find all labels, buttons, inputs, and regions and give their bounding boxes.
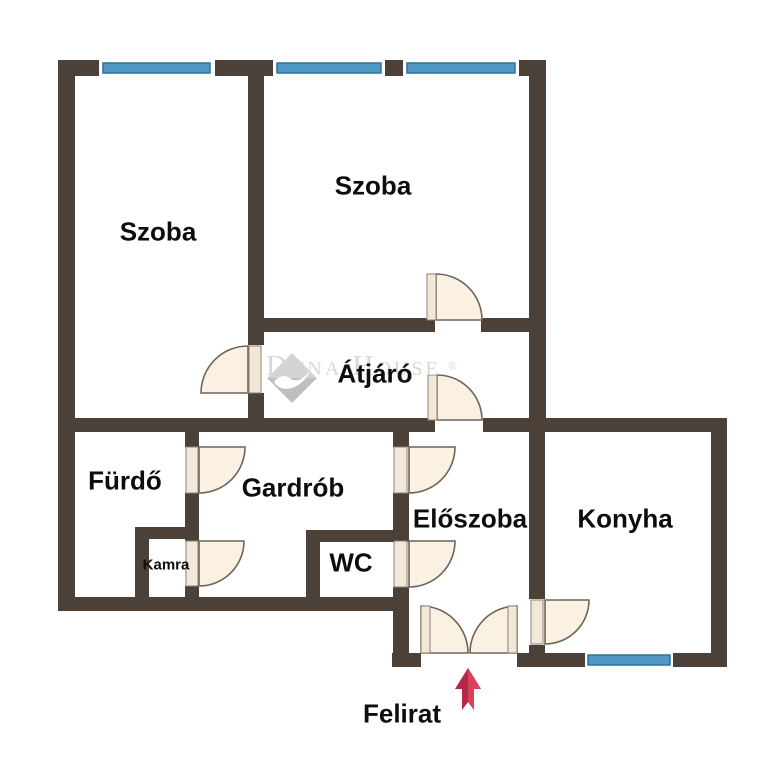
door-leaf bbox=[428, 375, 437, 420]
door-swing-arc bbox=[545, 600, 589, 644]
floorplan: Duna House® Szoba Szoba Átjáró Fürdő Gar… bbox=[0, 0, 768, 768]
entrance-arrow-icon bbox=[455, 668, 481, 710]
wall-segment bbox=[670, 653, 727, 667]
door-szoba-left bbox=[201, 346, 261, 393]
door-szoba-right bbox=[427, 274, 482, 320]
wall-segment bbox=[529, 418, 545, 599]
wall-segment bbox=[711, 418, 727, 667]
door-leaf bbox=[394, 447, 407, 493]
room-label-konyha: Konyha bbox=[577, 504, 672, 535]
wall-segment bbox=[393, 587, 409, 667]
door-swing-arc bbox=[199, 541, 244, 586]
door-entrance-right bbox=[470, 606, 517, 653]
wall-segment bbox=[393, 418, 409, 447]
room-label-gardrob: Gardrób bbox=[242, 473, 345, 504]
wall-segment bbox=[58, 418, 435, 432]
door-swing-arc bbox=[436, 274, 482, 320]
room-label-wc: WC bbox=[329, 548, 372, 579]
door-atjaro bbox=[428, 375, 482, 420]
window-konyha bbox=[585, 653, 673, 667]
room-label-kamra: Kamra bbox=[143, 557, 190, 574]
wall-segment bbox=[481, 318, 546, 332]
door-swing-arc bbox=[199, 447, 245, 493]
door-konyha bbox=[531, 600, 589, 644]
window-glass bbox=[407, 63, 515, 73]
wall-segment bbox=[185, 432, 199, 447]
wall-segment bbox=[306, 530, 409, 542]
room-label-atjaro: Átjáró bbox=[337, 359, 412, 390]
window-szoba-right-1 bbox=[273, 60, 385, 76]
wall-segment bbox=[185, 586, 199, 597]
door-wc bbox=[394, 541, 455, 587]
door-gardrob bbox=[394, 447, 455, 493]
wall-segment bbox=[248, 318, 435, 332]
door-leaf bbox=[421, 606, 430, 653]
wall-segment bbox=[248, 60, 264, 345]
window-glass bbox=[277, 63, 381, 73]
arrow-highlight bbox=[468, 668, 481, 710]
door-kamra bbox=[186, 541, 244, 586]
wall-segment bbox=[58, 597, 407, 611]
room-label-eloszoba: Előszoba bbox=[413, 504, 527, 535]
wall-segment bbox=[529, 645, 545, 667]
wall-segment bbox=[483, 418, 727, 432]
caption-felirat: Felirat bbox=[363, 699, 441, 730]
room-label-szoba-left: Szoba bbox=[120, 217, 197, 248]
room-label-furdo: Fürdő bbox=[88, 466, 162, 497]
door-leaf bbox=[394, 541, 407, 587]
wall-segment bbox=[517, 653, 588, 667]
door-swing-arc bbox=[437, 375, 482, 420]
door-swing-arc bbox=[409, 541, 455, 587]
door-swing-arc bbox=[201, 346, 248, 393]
wall-segment bbox=[58, 60, 75, 611]
wall-segment bbox=[306, 530, 320, 611]
door-leaf bbox=[531, 600, 543, 644]
room-label-szoba-right: Szoba bbox=[335, 171, 412, 202]
wall-segment bbox=[529, 60, 546, 432]
window-szoba-right-2 bbox=[403, 60, 519, 76]
door-entrance-left bbox=[421, 606, 468, 653]
door-leaf bbox=[186, 447, 198, 493]
door-furdo bbox=[186, 447, 245, 493]
door-leaf bbox=[508, 606, 517, 653]
window-szoba-left bbox=[99, 60, 215, 76]
door-leaf bbox=[249, 346, 261, 393]
window-glass bbox=[103, 63, 210, 73]
door-leaf bbox=[427, 274, 436, 320]
door-swing-arc bbox=[409, 447, 455, 493]
window-glass bbox=[588, 655, 670, 665]
